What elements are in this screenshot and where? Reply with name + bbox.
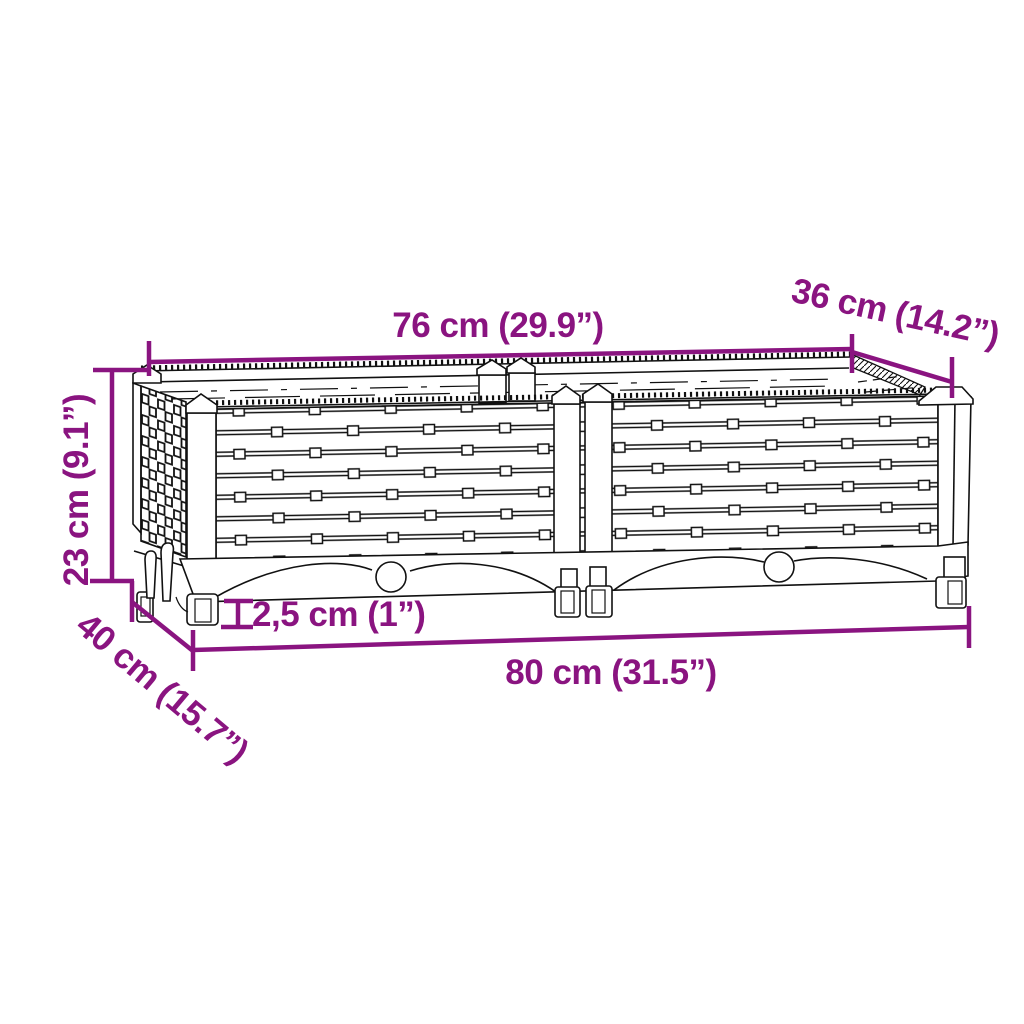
left-weave-panel [134,386,186,566]
dimension-line [149,349,852,362]
dimension-label-height: 23 cm (9.1”) [57,394,96,586]
dimension-label-top-width: 76 cm (29.9”) [392,306,603,345]
dimension-label-ground-clearance: 2,5 cm (1”) [252,595,425,634]
planter-dimension-diagram: 76 cm (29.9”) 36 cm (14.2”) 23 cm (9.1”)… [0,0,1024,1024]
dimension-label-top-depth: 36 cm (14.2”) [788,271,1003,355]
dimension-ground-clearance: 2,5 cm (1”) [221,595,425,634]
dimension-label-bottom-depth: 40 cm (15.7”) [69,605,256,771]
dimension-bottom-depth: 40 cm (15.7”) [69,581,256,771]
planter-illustration [133,354,973,625]
corner-post-front-left [186,394,217,562]
dimension-label-bottom-width: 80 cm (31.5”) [505,653,716,692]
